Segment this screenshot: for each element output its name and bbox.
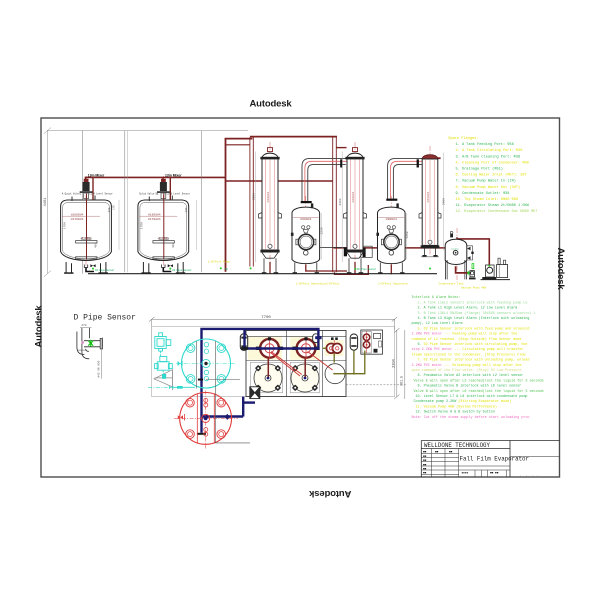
svg-text:L1-4 Level Sensor: L1-4 Level Sensor xyxy=(89,193,113,196)
svg-text:13m Mixer: 13m Mixer xyxy=(165,173,182,177)
svg-text:5. Drainage Port (Φ51): 5. Drainage Port (Φ51) xyxy=(456,167,503,172)
svg-text:11. Evaporator Steam 2t/DN80 1: 11. Evaporator Steam 2t/DN80 1.5KW xyxy=(456,203,530,208)
svg-text:∅900∅4: ∅900∅4 xyxy=(386,217,397,221)
svg-text:7. Vacuum Pump Water In (IN): 7. Vacuum Pump Water In (IN) xyxy=(456,179,516,184)
svg-text:∅1700∅4: ∅1700∅4 xyxy=(71,218,84,221)
svg-text:400: 400 xyxy=(172,243,175,248)
svg-text:■■: ■■ xyxy=(423,455,427,458)
svg-text:400: 400 xyxy=(95,243,98,248)
svg-text:■■ ■■: ■■ ■■ xyxy=(490,472,499,475)
svg-text:1. A Tank L1&L2 sensors interl: 1. A Tank L1&L2 sensors interlock with f… xyxy=(418,300,528,305)
svg-text:2204: 2204 xyxy=(393,359,397,368)
svg-text:1700: 1700 xyxy=(141,222,144,229)
svg-text:command of L2 reached. (Stop O: command of L2 reached. (Stop Outside) Fl… xyxy=(412,337,522,342)
svg-text:2-Effect Separator: 2-Effect Separator xyxy=(378,281,409,285)
svg-text:1250: 1250 xyxy=(321,227,324,234)
svg-text:stop 2.2KW PVC motor --- Circu: stop 2.2KW PVC motor --- Circulating pum… xyxy=(412,347,524,352)
svg-text:1. A Tank Feeding Port: Φ38: 1. A Tank Feeding Port: Φ38 xyxy=(456,142,514,147)
svg-text:2.2KW PVC motor --- Feeding pu: 2.2KW PVC motor --- Feeding pump will st… xyxy=(412,332,518,337)
svg-text:4481: 4481 xyxy=(44,198,48,207)
svg-text:Autodesk: Autodesk xyxy=(308,488,351,499)
svg-text:3200: 3200 xyxy=(339,198,342,205)
svg-text:3. B Tank L3&L4 DN25mm (flange: 3. B Tank L3&L4 DN25mm (flange) 304SUS s… xyxy=(418,311,536,316)
svg-text:D2 Pipe Sensor: D2 Pipe Sensor xyxy=(357,268,377,271)
svg-text:Valve B will open after L6 rea: Valve B will open after L6 reached(lost … xyxy=(414,389,544,394)
svg-text:Note: Cut off the steam supply: Note: Cut off the steam supply before st… xyxy=(412,415,530,420)
svg-text:∅480∅4: ∅480∅4 xyxy=(352,191,355,202)
svg-text:Condensate Tank: Condensate Tank xyxy=(439,281,464,285)
svg-text:Vacuum Pump 4KW: Vacuum Pump 4KW xyxy=(461,286,486,289)
svg-text:-0.090: -0.090 xyxy=(80,237,91,240)
svg-text:10. Level Sensor L7 & L8 inter: 10. Level Sensor L7 & L8 interlock with … xyxy=(416,394,528,399)
svg-text:5. D2 Pipe Sensor interlock wi: 5. D2 Pipe Sensor interlock with feed pu… xyxy=(418,326,530,331)
svg-text:■■: ■■ xyxy=(423,467,427,470)
svg-text:3200: 3200 xyxy=(252,193,255,200)
svg-text:∅1700∅4: ∅1700∅4 xyxy=(148,218,161,221)
svg-text:■■: ■■ xyxy=(423,472,427,475)
svg-text:11. Vacuum Pump 4KW (System Pe: 11. Vacuum Pump 4KW (System Performance) xyxy=(416,404,497,409)
svg-text:Autodesk: Autodesk xyxy=(33,305,44,348)
svg-text:1-Effect Separator: 1-Effect Separator xyxy=(296,281,327,285)
svg-text:7700: 7700 xyxy=(261,316,271,320)
svg-text:Autodesk: Autodesk xyxy=(249,99,292,110)
svg-text:240: 240 xyxy=(108,207,111,212)
svg-text:2.2KW PVC motor --- Unloading: 2.2KW PVC motor --- Unloading pump will … xyxy=(412,363,522,368)
svg-text:open command of the Flow valve: open command of the Flow valve. (Stop) D… xyxy=(412,368,522,373)
svg-text:....: .... xyxy=(520,474,543,477)
svg-text:6. Cooling Water Inlet (Φ57):: 6. Cooling Water Inlet (Φ57): 30T xyxy=(456,173,528,178)
svg-text:WELLDONE TECHNOLOGY: WELLDONE TECHNOLOGY xyxy=(424,442,490,449)
svg-text:Valve E will open after L3 rea: Valve E will open after L3 reached(lost … xyxy=(414,378,544,383)
svg-text:12. Switch Valve A & B switch: 12. Switch Valve A & B switch by button xyxy=(416,410,495,415)
svg-text:2. A Tank Circulating Port: Φ3: 2. A Tank Circulating Port: Φ38 xyxy=(456,148,523,153)
svg-text:∅900∅4: ∅900∅4 xyxy=(300,217,311,221)
svg-text:9. Pneumatic Valve B interlock: 9. Pneumatic Valve B interlock with L6 l… xyxy=(418,384,522,389)
svg-text:∅480∅4: ∅480∅4 xyxy=(267,191,270,202)
svg-text:7. D2 Pipe Sensor interlock wi: 7. D2 Pipe Sensor interlock with unloadi… xyxy=(418,358,530,363)
svg-text:∅1600∅4: ∅1600∅4 xyxy=(71,214,84,217)
svg-text:D Pipe Sensor: D Pipe Sensor xyxy=(74,314,137,323)
svg-text:A Quick Valve2: A Quick Valve2 xyxy=(62,193,82,196)
svg-text:Interlock & Alarm Notes:: Interlock & Alarm Notes: xyxy=(412,295,461,300)
svg-text:1-Effect Pump: 1-Effect Pump xyxy=(208,260,230,264)
svg-text:pump), L2 Low Level Alarm: pump), L2 Low Level Alarm xyxy=(412,321,463,326)
svg-text:■■: ■■ xyxy=(449,451,453,454)
svg-text:■■: ■■ xyxy=(423,451,427,454)
svg-text:Fall Film Evaporator: Fall Film Evaporator xyxy=(460,456,530,463)
svg-text:Autodesk: Autodesk xyxy=(555,247,566,290)
svg-text:13m Mixer: 13m Mixer xyxy=(88,173,105,177)
svg-text:2-Effect: 2-Effect xyxy=(326,281,340,285)
svg-text:Condensate pump 2.2KW (Stirrin: Condensate pump 2.2KW (Stirring Evaporat… xyxy=(414,399,512,404)
svg-text:381.5: 381.5 xyxy=(401,376,405,386)
svg-text:240: 240 xyxy=(185,207,188,212)
svg-text:∅70: ∅70 xyxy=(82,324,87,327)
svg-text:170: 170 xyxy=(113,205,116,210)
svg-text:Solid Valve B▲: Solid Valve B▲ xyxy=(139,193,159,196)
svg-text:2. A Tank L1 High Level Alarm,: 2. A Tank L1 High Level Alarm, L2 Low Le… xyxy=(418,306,518,311)
svg-text:1250: 1250 xyxy=(406,231,409,238)
svg-text:-0.090: -0.090 xyxy=(157,237,168,240)
svg-text:■■: ■■ xyxy=(435,451,439,454)
svg-text:∅1600∅4: ∅1600∅4 xyxy=(148,214,161,217)
svg-text:◆◆◆◆: ◆◆◆◆ xyxy=(462,472,469,475)
svg-text:8. Vacuum Pump Water Out (OUT): 8. Vacuum Pump Water Out (OUT) xyxy=(456,185,521,190)
svg-text:■■: ■■ xyxy=(423,463,427,466)
svg-text:4. B Tank L3 High Level Alarm: 4. B Tank L3 High Level Alarm (Interlock… xyxy=(418,316,530,321)
svg-text:10. Top Steam Inlet: DN80 Φ89: 10. Top Steam Inlet: DN80 Φ89 xyxy=(456,197,519,202)
svg-text:12. Evaporator Condensate Out: 12. Evaporator Condensate Out DN50 Φ57 xyxy=(456,209,538,214)
svg-text:3. A/B Tank Cleaning Port: Φ38: 3. A/B Tank Cleaning Port: Φ38 xyxy=(456,154,521,159)
svg-text:L5-8 Level Sensor: L5-8 Level Sensor xyxy=(167,193,191,196)
svg-text:9. Condensate Outlet: Φ38: 9. Condensate Outlet: Φ38 xyxy=(456,191,510,196)
svg-text:D2 Pipe Sensor: D2 Pipe Sensor xyxy=(95,269,115,272)
svg-text:8. Pneumatic Valve A2 interloc: 8. Pneumatic Valve A2 interlock with L2 … xyxy=(418,373,524,378)
svg-text:SUS304: SUS304 xyxy=(451,247,460,250)
svg-text:∅45 OR ∅50: ∅45 OR ∅50 xyxy=(98,360,101,377)
svg-text:D2 Pipe Sensor: D2 Pipe Sensor xyxy=(173,269,193,272)
svg-text:6. D2 Pipe Sensor interlock wi: 6. D2 Pipe Sensor interlock with circula… xyxy=(418,342,528,347)
svg-text:3000: 3000 xyxy=(443,198,446,205)
svg-text:Spare Flanges:: Spare Flanges: xyxy=(448,136,478,141)
svg-text:steam open/closed to the conde: steam open/closed to the condenser. (Sto… xyxy=(412,352,526,357)
svg-text:4. Cleaning Port of Condenser:: 4. Cleaning Port of Condenser: Φ38 xyxy=(456,160,529,165)
svg-text:1700: 1700 xyxy=(63,222,66,229)
svg-text:∅450∅4: ∅450∅4 xyxy=(427,191,430,202)
svg-text:■■: ■■ xyxy=(423,459,427,462)
